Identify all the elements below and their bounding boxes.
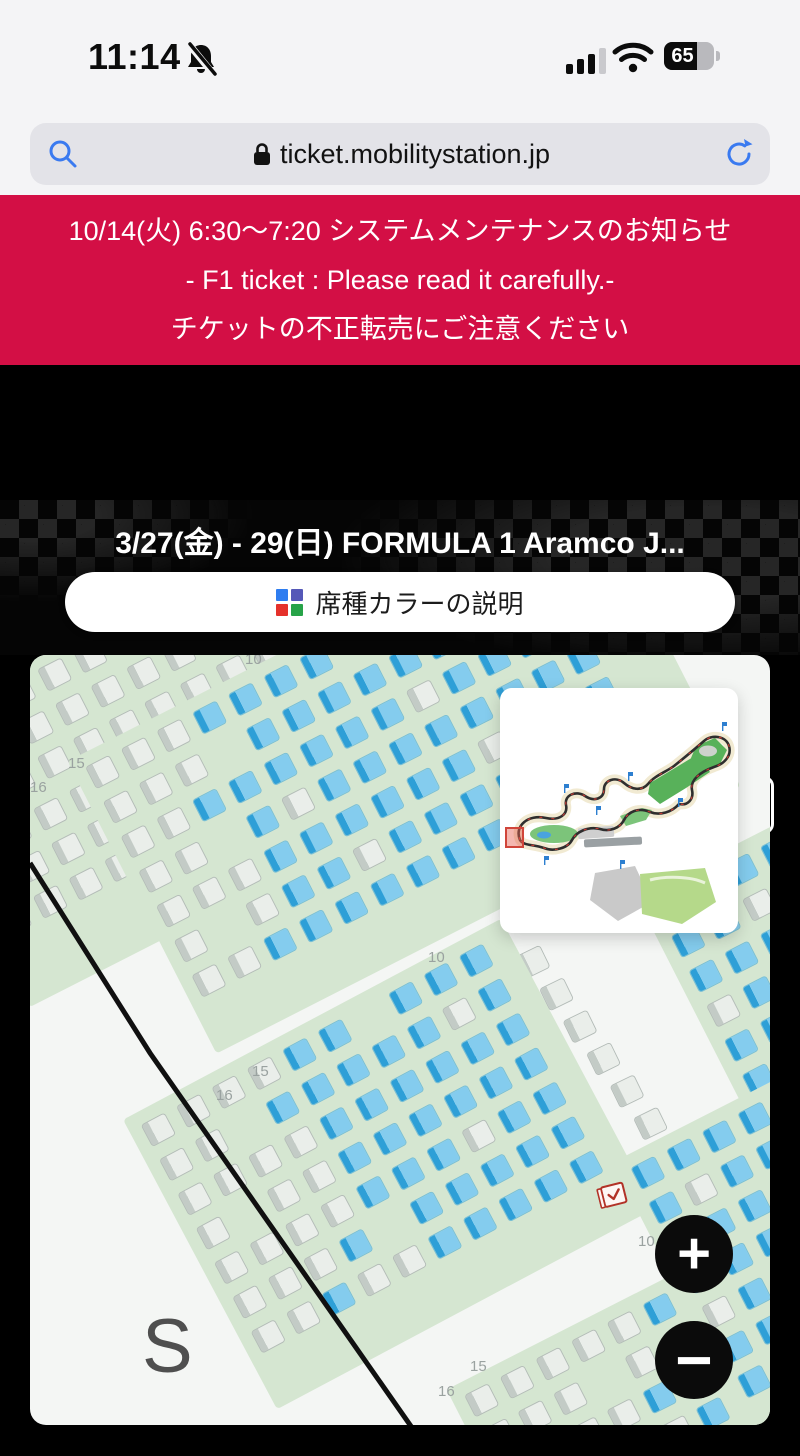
refresh-icon[interactable] — [722, 137, 756, 171]
seat-available[interactable] — [721, 1155, 754, 1187]
seat-available[interactable] — [570, 1151, 603, 1183]
seat-available[interactable] — [461, 1032, 494, 1064]
seat-available[interactable] — [725, 1029, 758, 1061]
seat-available[interactable] — [339, 1230, 372, 1262]
seat-unavailable — [572, 1330, 605, 1362]
seat-unavailable — [34, 886, 67, 918]
seat-unavailable — [179, 1183, 212, 1215]
seat-available[interactable] — [264, 753, 297, 785]
seat-available[interactable] — [743, 976, 770, 1008]
battery-percent: 65 — [664, 42, 701, 70]
seat-unavailable — [564, 1011, 597, 1043]
seat-available[interactable] — [738, 1190, 770, 1222]
app-header: 取り置き中 あと15分 座席選択 ✓ 2 2 ログイン中 — [0, 365, 800, 500]
seat-available[interactable] — [407, 768, 440, 800]
row-number-label: 16 — [216, 1087, 233, 1104]
seat-unavailable — [30, 677, 35, 709]
seat-unavailable — [196, 1129, 229, 1161]
seat-unavailable — [443, 998, 476, 1030]
battery-nub — [716, 51, 720, 61]
seat-available[interactable] — [229, 683, 262, 715]
seat-unavailable — [285, 1126, 318, 1158]
seat-available[interactable] — [460, 945, 493, 977]
seat-unavailable — [104, 791, 137, 823]
seat-unavailable — [554, 1383, 587, 1415]
seat-unavailable — [38, 746, 71, 778]
seat-available[interactable] — [761, 924, 770, 956]
seat-unavailable — [127, 657, 160, 689]
seat-available[interactable] — [551, 1117, 584, 1149]
seat-unavailable — [252, 1320, 285, 1352]
seat-unavailable — [393, 1245, 426, 1277]
seat-unavailable — [215, 1251, 248, 1283]
seat-unavailable — [122, 826, 155, 858]
seat-available[interactable] — [265, 665, 298, 697]
seat-unavailable — [537, 1348, 570, 1380]
legend-button-label: 席種カラーの説明 — [315, 584, 523, 621]
row-number-label: 15 — [470, 1358, 487, 1375]
seat-unavailable — [52, 833, 85, 865]
seat-unavailable — [157, 895, 190, 927]
zoom-out-button[interactable]: − — [655, 1321, 733, 1399]
seat-unavailable — [30, 851, 49, 883]
seat-unavailable — [140, 773, 173, 805]
seat-available[interactable] — [428, 1226, 461, 1258]
circuit-track-drawing — [500, 688, 738, 933]
seat-available[interactable] — [318, 857, 351, 889]
seat-unavailable — [661, 1416, 694, 1425]
seat-available[interactable] — [496, 1014, 529, 1046]
seat-unavailable — [462, 1120, 495, 1152]
seat-available[interactable] — [425, 655, 458, 659]
seat-unavailable — [197, 1217, 230, 1249]
seat-unavailable — [158, 720, 191, 752]
seat-available[interactable] — [318, 682, 351, 714]
seat-unavailable — [175, 930, 208, 962]
seat-unavailable — [358, 1264, 391, 1296]
seat-available[interactable] — [300, 655, 333, 679]
seat-available[interactable] — [761, 836, 770, 868]
seat-unavailable — [34, 798, 67, 830]
seat-available[interactable] — [533, 1082, 566, 1114]
seat-available[interactable] — [389, 733, 422, 765]
seat-unavailable — [268, 1179, 301, 1211]
seat-available[interactable] — [354, 664, 387, 696]
seat-available[interactable] — [282, 875, 315, 907]
seat-available[interactable] — [335, 804, 368, 836]
seat-available[interactable] — [389, 982, 422, 1014]
battery-icon: 65 — [664, 42, 714, 70]
seat-unavailable — [501, 1366, 534, 1398]
cell-signal-icon — [566, 48, 606, 74]
seat-available[interactable] — [460, 785, 493, 817]
seat-unavailable — [282, 788, 315, 820]
seat-available[interactable] — [478, 655, 511, 676]
seat-available[interactable] — [408, 1017, 441, 1049]
seat-available[interactable] — [690, 960, 723, 992]
seat-unavailable — [70, 868, 103, 900]
seat-available[interactable] — [534, 1170, 567, 1202]
browser-chrome: 11:14 65 ticket.mobility — [0, 0, 800, 195]
seat-available[interactable] — [460, 697, 493, 729]
seat-available[interactable] — [282, 700, 315, 732]
seat-unavailable — [286, 1214, 319, 1246]
row-number-label: 10 — [245, 655, 262, 668]
seat-unavailable — [74, 655, 107, 672]
seat-unavailable — [142, 1114, 175, 1146]
seat-unavailable — [30, 816, 31, 848]
seat-map[interactable]: S — [30, 655, 770, 1425]
row-number-label: 16 — [438, 1383, 455, 1400]
seat-available[interactable] — [632, 1157, 665, 1189]
seat-available[interactable] — [283, 1039, 316, 1071]
seat-unavailable — [177, 1095, 210, 1127]
seat-available[interactable] — [247, 718, 280, 750]
seat-available[interactable] — [481, 1154, 514, 1186]
stand-s-label: S — [142, 1303, 193, 1390]
seat-unavailable — [140, 860, 173, 892]
notice-line-2: - F1 ticket : Please read it carefully.- — [0, 267, 800, 294]
zoom-in-button[interactable]: + — [655, 1215, 733, 1293]
seat-available[interactable] — [264, 928, 297, 960]
seat-available[interactable] — [498, 1101, 531, 1133]
seat-available[interactable] — [516, 1136, 549, 1168]
seat-unavailable — [483, 1419, 516, 1425]
seat-available[interactable] — [644, 1294, 677, 1326]
seat-unavailable — [626, 1346, 659, 1378]
row-number-label: 10 — [428, 949, 445, 966]
notifications-off-icon — [182, 40, 220, 78]
seat-available[interactable] — [302, 1073, 335, 1105]
seat-unavailable — [269, 1267, 302, 1299]
seat-available[interactable] — [725, 942, 758, 974]
seat-unavailable — [163, 655, 196, 671]
seat-available[interactable] — [391, 1070, 424, 1102]
seat-available[interactable] — [300, 910, 333, 942]
seat-unavailable — [303, 1161, 336, 1193]
seat-available[interactable] — [703, 1121, 736, 1153]
seat-available[interactable] — [442, 837, 475, 869]
seat-unavailable — [321, 1195, 354, 1227]
seat-available[interactable] — [425, 715, 458, 747]
seat-unavailable — [30, 712, 53, 744]
seat-unavailable — [214, 1164, 247, 1196]
seat-unavailable — [304, 1248, 337, 1280]
seat-unavailable — [634, 1108, 667, 1140]
seat-unavailable — [743, 889, 770, 921]
seat-available[interactable] — [478, 979, 511, 1011]
search-icon[interactable] — [46, 137, 80, 171]
seat-available[interactable] — [318, 770, 351, 802]
seat-unavailable — [587, 1043, 620, 1075]
seat-available[interactable] — [445, 1173, 478, 1205]
seat-available[interactable] — [371, 874, 404, 906]
seat-available[interactable] — [697, 1398, 730, 1425]
seat-available[interactable] — [738, 1366, 770, 1398]
seat-unavailable — [685, 1174, 718, 1206]
seat-available[interactable] — [193, 702, 226, 734]
seat-available[interactable] — [444, 1086, 477, 1118]
seat-unavailable — [56, 693, 89, 725]
seat-available[interactable] — [514, 655, 547, 658]
seat-unavailable — [707, 995, 740, 1027]
row-number-label: 15 — [68, 755, 85, 772]
seat-available[interactable] — [246, 806, 279, 838]
seat-available[interactable] — [499, 1189, 532, 1221]
seat-unavailable — [38, 659, 71, 691]
address-bar[interactable]: ticket.mobilitystation.jp — [30, 123, 770, 185]
seat-available[interactable] — [425, 963, 458, 995]
seat-available[interactable] — [322, 1283, 355, 1315]
url-text[interactable]: ticket.mobilitystation.jp — [280, 139, 550, 170]
seat-available[interactable] — [410, 1192, 443, 1224]
seat-unavailable — [611, 1075, 644, 1107]
seat-unavailable — [251, 1233, 284, 1265]
seat-available[interactable] — [355, 1089, 388, 1121]
seat-available[interactable] — [319, 1020, 352, 1052]
status-bar: 11:14 65 — [0, 0, 800, 100]
maintenance-notice-banner[interactable]: 10/14(火) 6:30～7:20 システムメンテナンスのお知らせ - F1 … — [0, 195, 800, 365]
seat-unavailable — [229, 859, 262, 891]
notice-line-1: 10/14(火) 6:30～7:20 システムメンテナンスのお知らせ — [0, 218, 800, 245]
seat-available[interactable] — [266, 1092, 299, 1124]
seat-unavailable — [519, 1401, 552, 1425]
seat-available[interactable] — [667, 1139, 700, 1171]
notice-line-3: チケットの不正転売にご注意ください — [0, 316, 800, 343]
seat-available[interactable] — [320, 1107, 353, 1139]
seat-available[interactable] — [567, 655, 600, 674]
seat-available[interactable] — [464, 1208, 497, 1240]
seat-unavailable — [353, 839, 386, 871]
seat-available[interactable] — [392, 1158, 425, 1190]
seat-available[interactable] — [300, 735, 333, 767]
seat-available[interactable] — [374, 1123, 407, 1155]
seat-legend-button[interactable]: 席種カラーの説明 — [65, 572, 735, 632]
seat-available[interactable] — [443, 662, 476, 694]
seat-available[interactable] — [336, 717, 369, 749]
seat-unavailable — [572, 1418, 605, 1425]
seat-available[interactable] — [756, 1313, 770, 1345]
seat-unavailable — [30, 655, 53, 656]
seat-unavailable — [407, 680, 440, 712]
seat-available[interactable] — [442, 750, 475, 782]
seat-available[interactable] — [193, 789, 226, 821]
seat-available[interactable] — [738, 1278, 770, 1310]
circuit-inset-map[interactable] — [500, 688, 738, 933]
seat-available[interactable] — [479, 1067, 512, 1099]
seat-available[interactable] — [372, 1035, 405, 1067]
seat-unavailable — [86, 756, 119, 788]
seat-available[interactable] — [389, 655, 422, 677]
status-time: 11:14 — [88, 36, 181, 78]
seat-available[interactable] — [371, 698, 404, 730]
seat-available[interactable] — [515, 1048, 548, 1080]
seat-unavailable — [234, 1286, 267, 1318]
seat-available[interactable] — [300, 822, 333, 854]
seat-unavailable — [175, 755, 208, 787]
seat-unavailable — [122, 738, 155, 770]
seat-unavailable — [249, 1145, 282, 1177]
seat-unavailable — [193, 877, 226, 909]
seat-available[interactable] — [356, 1176, 389, 1208]
lock-icon — [252, 141, 272, 167]
event-bar: 3/27(金) - 29(日) FORMULA 1 Aramco J... 席種… — [0, 500, 800, 655]
seat-available[interactable] — [335, 892, 368, 924]
color-grid-icon — [276, 589, 303, 616]
seat-available[interactable] — [426, 1051, 459, 1083]
seat-available[interactable] — [424, 803, 457, 835]
seat-unavailable — [30, 904, 31, 936]
seat-available[interactable] — [389, 821, 422, 853]
seat-unavailable — [175, 842, 208, 874]
seat-available[interactable] — [761, 1011, 770, 1043]
event-title: 3/27(金) - 29(日) FORMULA 1 Aramco J... — [0, 518, 800, 562]
wifi-icon — [612, 42, 654, 74]
seat-unavailable — [157, 807, 190, 839]
seat-available[interactable] — [756, 1137, 770, 1169]
seat-unavailable — [608, 1399, 641, 1425]
seat-unavailable — [465, 1384, 498, 1416]
seat-available[interactable] — [229, 771, 262, 803]
seat-unavailable — [246, 894, 279, 926]
seat-unavailable — [160, 1148, 193, 1180]
seat-available[interactable] — [409, 1104, 442, 1136]
seat-unavailable — [92, 675, 125, 707]
seat-unavailable — [287, 1302, 320, 1334]
seat-available[interactable] — [371, 786, 404, 818]
row-number-label: 10 — [638, 1233, 655, 1250]
seat-available[interactable] — [756, 1225, 770, 1257]
seat-unavailable — [608, 1312, 641, 1344]
seat-available[interactable] — [353, 751, 386, 783]
seat-available[interactable] — [427, 1139, 460, 1171]
row-number-label: 16 — [30, 779, 47, 796]
seat-available[interactable] — [337, 1054, 370, 1086]
seat-available[interactable] — [739, 1103, 770, 1135]
seat-unavailable — [193, 965, 226, 997]
seat-available[interactable] — [406, 856, 439, 888]
seat-available[interactable] — [264, 841, 297, 873]
row-number-label: 15 — [252, 1063, 269, 1080]
seat-unavailable — [228, 946, 261, 978]
seat-available[interactable] — [338, 1142, 371, 1174]
